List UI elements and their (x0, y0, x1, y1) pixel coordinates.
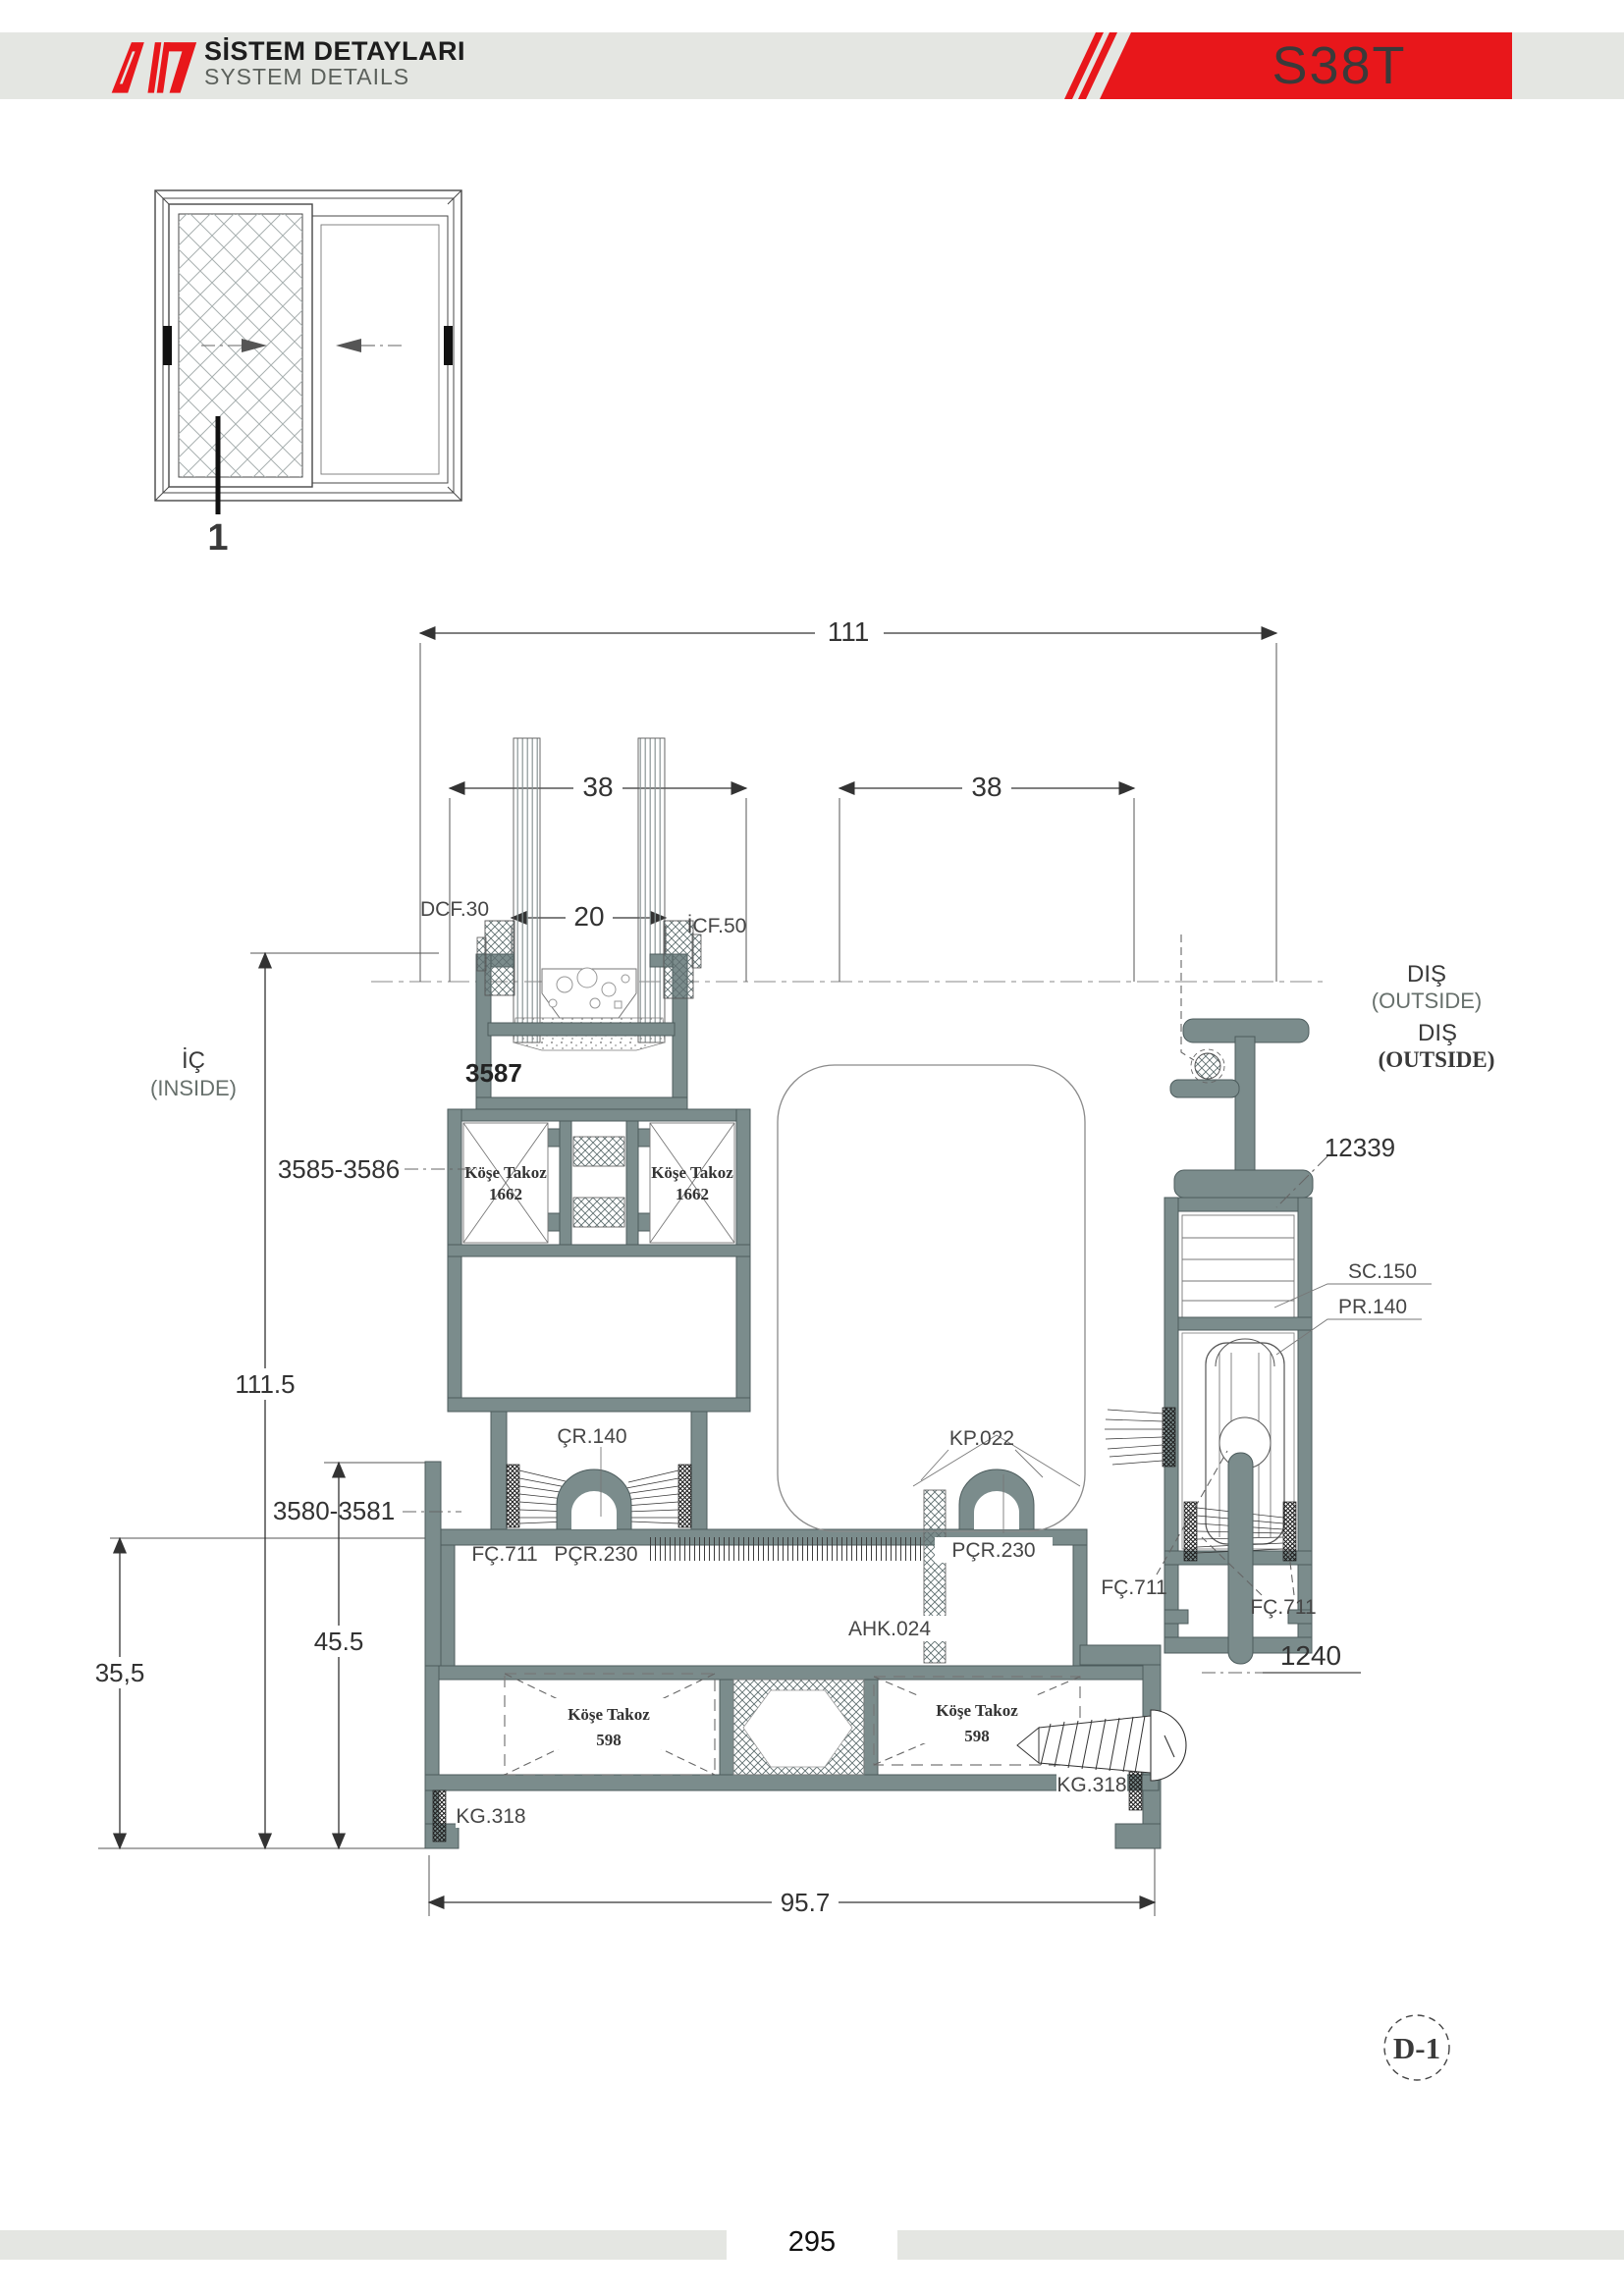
window-elevation: 1 (155, 190, 461, 559)
label-fc711-right: FÇ.711 (1250, 1596, 1316, 1619)
label-outside-1: (OUTSIDE) (1372, 988, 1482, 1013)
label-cr140: ÇR.140 (557, 1425, 626, 1448)
pile-seal-left (507, 1465, 519, 1527)
label-ic: İÇ (182, 1047, 205, 1074)
interlock-profiles: Köşe Takoz 1662 Köşe Takoz 1662 (448, 1109, 750, 1256)
dimension-lines (120, 633, 1276, 1902)
label-kg318-right: KG.318 (1056, 1774, 1126, 1796)
weather-brush-strip (646, 1537, 921, 1561)
label-kg318-left: KG.318 (456, 1805, 525, 1828)
bubble-gasket (1195, 1053, 1220, 1079)
dim-sill-width: 95.7 (781, 1888, 831, 1917)
label-3587: 3587 (465, 1058, 522, 1088)
brush-fan-left2 (624, 1470, 678, 1523)
label-ahk024: AHK.024 (848, 1618, 931, 1640)
pile-seal-left2 (678, 1465, 691, 1527)
label-fc711-mid: FÇ.711 (1101, 1576, 1166, 1599)
panel-bottom-tongue (1228, 1453, 1253, 1664)
svg-text:1662: 1662 (489, 1185, 522, 1203)
brush-fan-upper (1105, 1410, 1163, 1465)
dim-overall-height: 111.5 (235, 1369, 295, 1399)
pile-seal-lower-right (1283, 1502, 1296, 1561)
label-inside: (INSIDE) (150, 1076, 237, 1100)
label-pr140: PR.140 (1338, 1296, 1407, 1318)
corner-key-1662-right: Köşe Takoz 1662 (650, 1123, 734, 1243)
label-pcr230-right: PÇR.230 (951, 1539, 1035, 1562)
svg-text:598: 598 (964, 1727, 990, 1745)
section-drawing: 1 111 38 38 20 111.5 45.5 35,5 95.7 (0, 0, 1624, 2296)
handle-left-icon (163, 326, 172, 365)
corner-key-1662-left: Köşe Takoz 1662 (463, 1123, 548, 1243)
detail-callout: 1 (207, 517, 228, 559)
handle-right-icon (444, 326, 453, 365)
page-number-box: 295 (727, 2221, 897, 2263)
label-sc150: SC.150 (1348, 1260, 1417, 1283)
detail-reference: D-1 (1384, 2015, 1449, 2080)
label-3580-3581: 3580-3581 (273, 1496, 395, 1525)
catalog-page: { "colors": { "accent":"#e8171b", "band"… (0, 0, 1624, 2296)
spacer-sc150 (1182, 1215, 1294, 1317)
corner-key-598-left: Köşe Takoz 598 (505, 1674, 715, 1775)
svg-text:Köşe Takoz: Köşe Takoz (651, 1163, 733, 1182)
glide-kg318-left (433, 1790, 446, 1842)
label-1240: 1240 (1280, 1640, 1341, 1671)
svg-text:Köşe Takoz: Köşe Takoz (936, 1701, 1018, 1720)
dim-mid-height: 45.5 (314, 1627, 364, 1656)
label-dis-2: DIŞ (1418, 1020, 1457, 1046)
label-12339: 12339 (1325, 1133, 1395, 1162)
dim-low-height: 35,5 (95, 1658, 145, 1687)
dim-total-width: 111 (828, 616, 870, 647)
dim-glazing: 20 (573, 901, 604, 932)
page-number: 295 (788, 2226, 836, 2258)
dim-left-sash: 38 (582, 772, 613, 802)
label-outside-2: (OUTSIDE) (1379, 1047, 1495, 1072)
label-pcr230-left: PÇR.230 (554, 1543, 637, 1566)
label-3585-3586: 3585-3586 (278, 1154, 400, 1184)
label-dis-1: DIŞ (1407, 961, 1446, 988)
svg-text:Köşe Takoz: Köşe Takoz (464, 1163, 547, 1182)
label-fc711-left: FÇ.711 (471, 1543, 537, 1566)
pile-seal-upper (1163, 1408, 1175, 1467)
pile-seal-lower-left (1184, 1502, 1197, 1561)
fixed-sash (312, 216, 448, 483)
svg-text:598: 598 (596, 1731, 622, 1749)
detail-ref-label: D-1 (1393, 2031, 1440, 2065)
outer-frame-rail (1105, 934, 1313, 1664)
svg-text:1662: 1662 (676, 1185, 709, 1203)
label-dcf30: DCF.30 (420, 898, 489, 921)
svg-text:Köşe Takoz: Köşe Takoz (568, 1705, 650, 1724)
label-kp022: KP.022 (949, 1427, 1014, 1450)
dim-right-sash: 38 (971, 772, 1001, 802)
gasket-dcf30 (485, 921, 514, 995)
label-icf50: İCF.50 (687, 915, 747, 937)
assembly-screw-icon (1017, 1710, 1186, 1781)
